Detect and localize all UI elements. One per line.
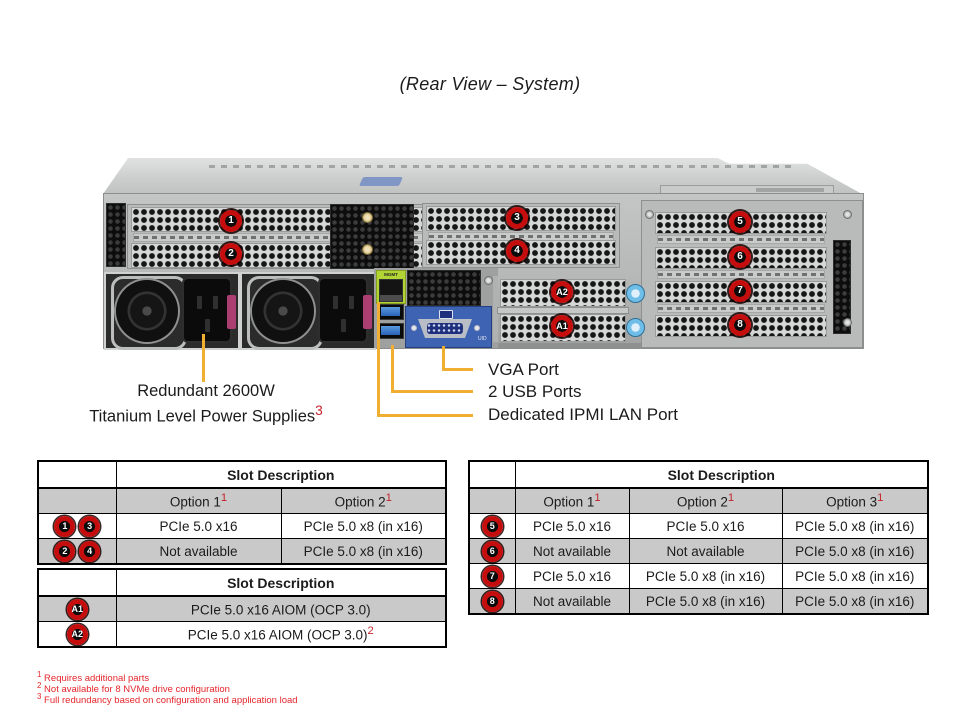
empty-cell [38, 461, 116, 488]
vga-pin-field [427, 323, 463, 334]
slot-divider [657, 270, 825, 279]
slot-badge-2: 2 [54, 541, 75, 562]
callout-line-ipmi [377, 414, 473, 417]
left-ear-vent [106, 203, 126, 267]
table-header: Slot Description [116, 461, 446, 488]
option-header: Option 21 [281, 488, 446, 514]
ocp-divider [497, 307, 629, 314]
ipmi-lan-label: Dedicated IPMI LAN Port [488, 405, 678, 425]
slot-badges-cell: 6 [469, 539, 515, 564]
slot-badge-4: 4 [506, 240, 528, 262]
screw-icon [362, 244, 373, 255]
table-row: 8 Not available PCIe 5.0 x8 (in x16) PCI… [469, 589, 928, 615]
slot-badge-3: 3 [506, 207, 528, 229]
slot-badge-2: 2 [220, 243, 242, 265]
table-row: 2 4 Not available PCIe 5.0 x8 (in x16) [38, 539, 446, 565]
slot-badges-cell: 7 [469, 564, 515, 589]
slot-desc-cell: PCIe 5.0 x8 (in x16) [629, 589, 782, 615]
empty-cell [469, 488, 515, 514]
slot-desc-cell: Not available [515, 539, 629, 564]
slot-badge-6: 6 [482, 541, 503, 562]
vga-port-label: VGA Port [488, 360, 559, 380]
vga-screw-icon [411, 325, 417, 331]
screw-icon [645, 210, 654, 219]
lid-vent-strip [209, 165, 793, 168]
slot-table-1-4: Slot Description Option 11 Option 21 1 3… [37, 460, 447, 565]
table-row: 6 Not available Not available PCIe 5.0 x… [469, 539, 928, 564]
table-row: A1 PCIe 5.0 x16 AIOM (OCP 3.0) [38, 596, 446, 622]
footnote-3: 3 Full redundancy based on configuration… [37, 692, 298, 706]
empty-cell [469, 461, 515, 488]
callout-line-usb [391, 345, 394, 393]
slot-desc-cell: PCIe 5.0 x8 (in x16) [782, 539, 928, 564]
psu-latch-clip [363, 295, 372, 329]
slot-badge-3: 3 [79, 516, 100, 537]
option-header: Option 31 [782, 488, 928, 514]
psu-ac-inlet [182, 277, 232, 343]
slot-desc-cell: PCIe 5.0 x8 (in x16) [782, 564, 928, 589]
usb-ports-label: 2 USB Ports [488, 382, 582, 402]
empty-cell [38, 569, 116, 596]
slot-badge-a1: A1 [551, 315, 573, 337]
slot-desc-cell: PCIe 5.0 x8 (in x16) [782, 514, 928, 539]
slot-table-aiom: Slot Description A1 PCIe 5.0 x16 AIOM (O… [37, 568, 447, 648]
callout-line-psu [202, 334, 205, 382]
slot-desc-cell: PCIe 5.0 x16 [515, 514, 629, 539]
slot-badge-1: 1 [220, 210, 242, 232]
slot-badge-6: 6 [729, 246, 751, 268]
slot-desc-cell: PCIe 5.0 x8 (in x16) [281, 539, 446, 565]
slot-desc-cell: PCIe 5.0 x16 [629, 514, 782, 539]
slot-badges-cell: A2 [38, 622, 116, 648]
slot-desc-cell: Not available [116, 539, 281, 565]
vga-screw-icon [474, 325, 480, 331]
usb-port-2 [377, 323, 404, 339]
uid-label: UID [478, 336, 487, 342]
slot-desc-cell: PCIe 5.0 x16 AIOM (OCP 3.0) [116, 596, 446, 622]
slot-divider [657, 235, 825, 244]
callout-line-ipmi [377, 302, 380, 417]
rj45-jack-icon [379, 279, 403, 302]
power-supply-1 [104, 272, 240, 350]
screw-icon [484, 276, 493, 285]
power-supply-2 [240, 272, 376, 350]
slot-desc-cell: PCIe 5.0 x16 [116, 514, 281, 539]
slot-badge-5: 5 [482, 516, 503, 537]
manual-page: (Rear View – System) [0, 0, 960, 720]
screw-icon [843, 318, 852, 327]
slot-table-5-8: Slot Description Option 11 Option 21 Opt… [468, 460, 929, 615]
option-header: Option 11 [515, 488, 629, 514]
option-header: Option 21 [629, 488, 782, 514]
option-header: Option 11 [116, 488, 281, 514]
lid-sticker [359, 177, 403, 186]
psu-label: Redundant 2600W Titanium Level Power Sup… [45, 382, 367, 427]
slot-badge-1: 1 [54, 516, 75, 537]
slot-badge-a2: A2 [67, 624, 88, 645]
slot-desc-cell: Not available [629, 539, 782, 564]
mgmt-port-label: MGMT [377, 272, 405, 277]
slot-badge-4: 4 [79, 541, 100, 562]
callout-line-usb [391, 390, 473, 393]
screw-icon [843, 210, 852, 219]
slot-badge-a2: A2 [551, 281, 573, 303]
slot-badge-5: 5 [729, 211, 751, 233]
slot-badge-7: 7 [482, 566, 503, 587]
thumbscrew-icon [626, 284, 645, 303]
thumbscrew-icon [626, 318, 645, 337]
slot-desc-cell: PCIe 5.0 x16 [515, 564, 629, 589]
psu-ac-inlet [318, 277, 368, 343]
table-header: Slot Description [515, 461, 928, 488]
screw-icon [362, 212, 373, 223]
slot-badge-8: 8 [729, 314, 751, 336]
slot-badges-cell: 5 [469, 514, 515, 539]
slot-desc-cell: PCIe 5.0 x16 AIOM (OCP 3.0)2 [116, 622, 446, 648]
slot-badges-cell: 2 4 [38, 539, 116, 565]
page-title: (Rear View – System) [280, 74, 700, 95]
slot-badges-cell: 1 3 [38, 514, 116, 539]
slot-divider [657, 304, 825, 313]
monitor-icon [439, 310, 453, 319]
psu-latch-clip [227, 295, 236, 329]
psu-fan-icon [252, 280, 314, 342]
table-row: 5 PCIe 5.0 x16 PCIe 5.0 x16 PCIe 5.0 x8 … [469, 514, 928, 539]
psu-fan-icon [116, 280, 178, 342]
table-row: A2 PCIe 5.0 x16 AIOM (OCP 3.0)2 [38, 622, 446, 648]
slot-badge-a1: A1 [67, 599, 88, 620]
table-row: 7 PCIe 5.0 x16 PCIe 5.0 x8 (in x16) PCIe… [469, 564, 928, 589]
slot-desc-cell: Not available [515, 589, 629, 615]
table-header: Slot Description [116, 569, 446, 596]
io-vent-grid [407, 270, 481, 306]
empty-cell [38, 488, 116, 514]
usb-port-1 [377, 304, 404, 320]
slot-desc-cell: PCIe 5.0 x8 (in x16) [629, 564, 782, 589]
slot-badge-8: 8 [482, 591, 503, 612]
riser-handle [756, 188, 824, 192]
callout-line-vga [442, 368, 473, 371]
slot-desc-cell: PCIe 5.0 x8 (in x16) [281, 514, 446, 539]
slot-badges-cell: A1 [38, 596, 116, 622]
table-row: 1 3 PCIe 5.0 x16 PCIe 5.0 x8 (in x16) [38, 514, 446, 539]
slot-badges-cell: 8 [469, 589, 515, 615]
slot-badge-7: 7 [729, 280, 751, 302]
slot-desc-cell: PCIe 5.0 x8 (in x16) [782, 589, 928, 615]
